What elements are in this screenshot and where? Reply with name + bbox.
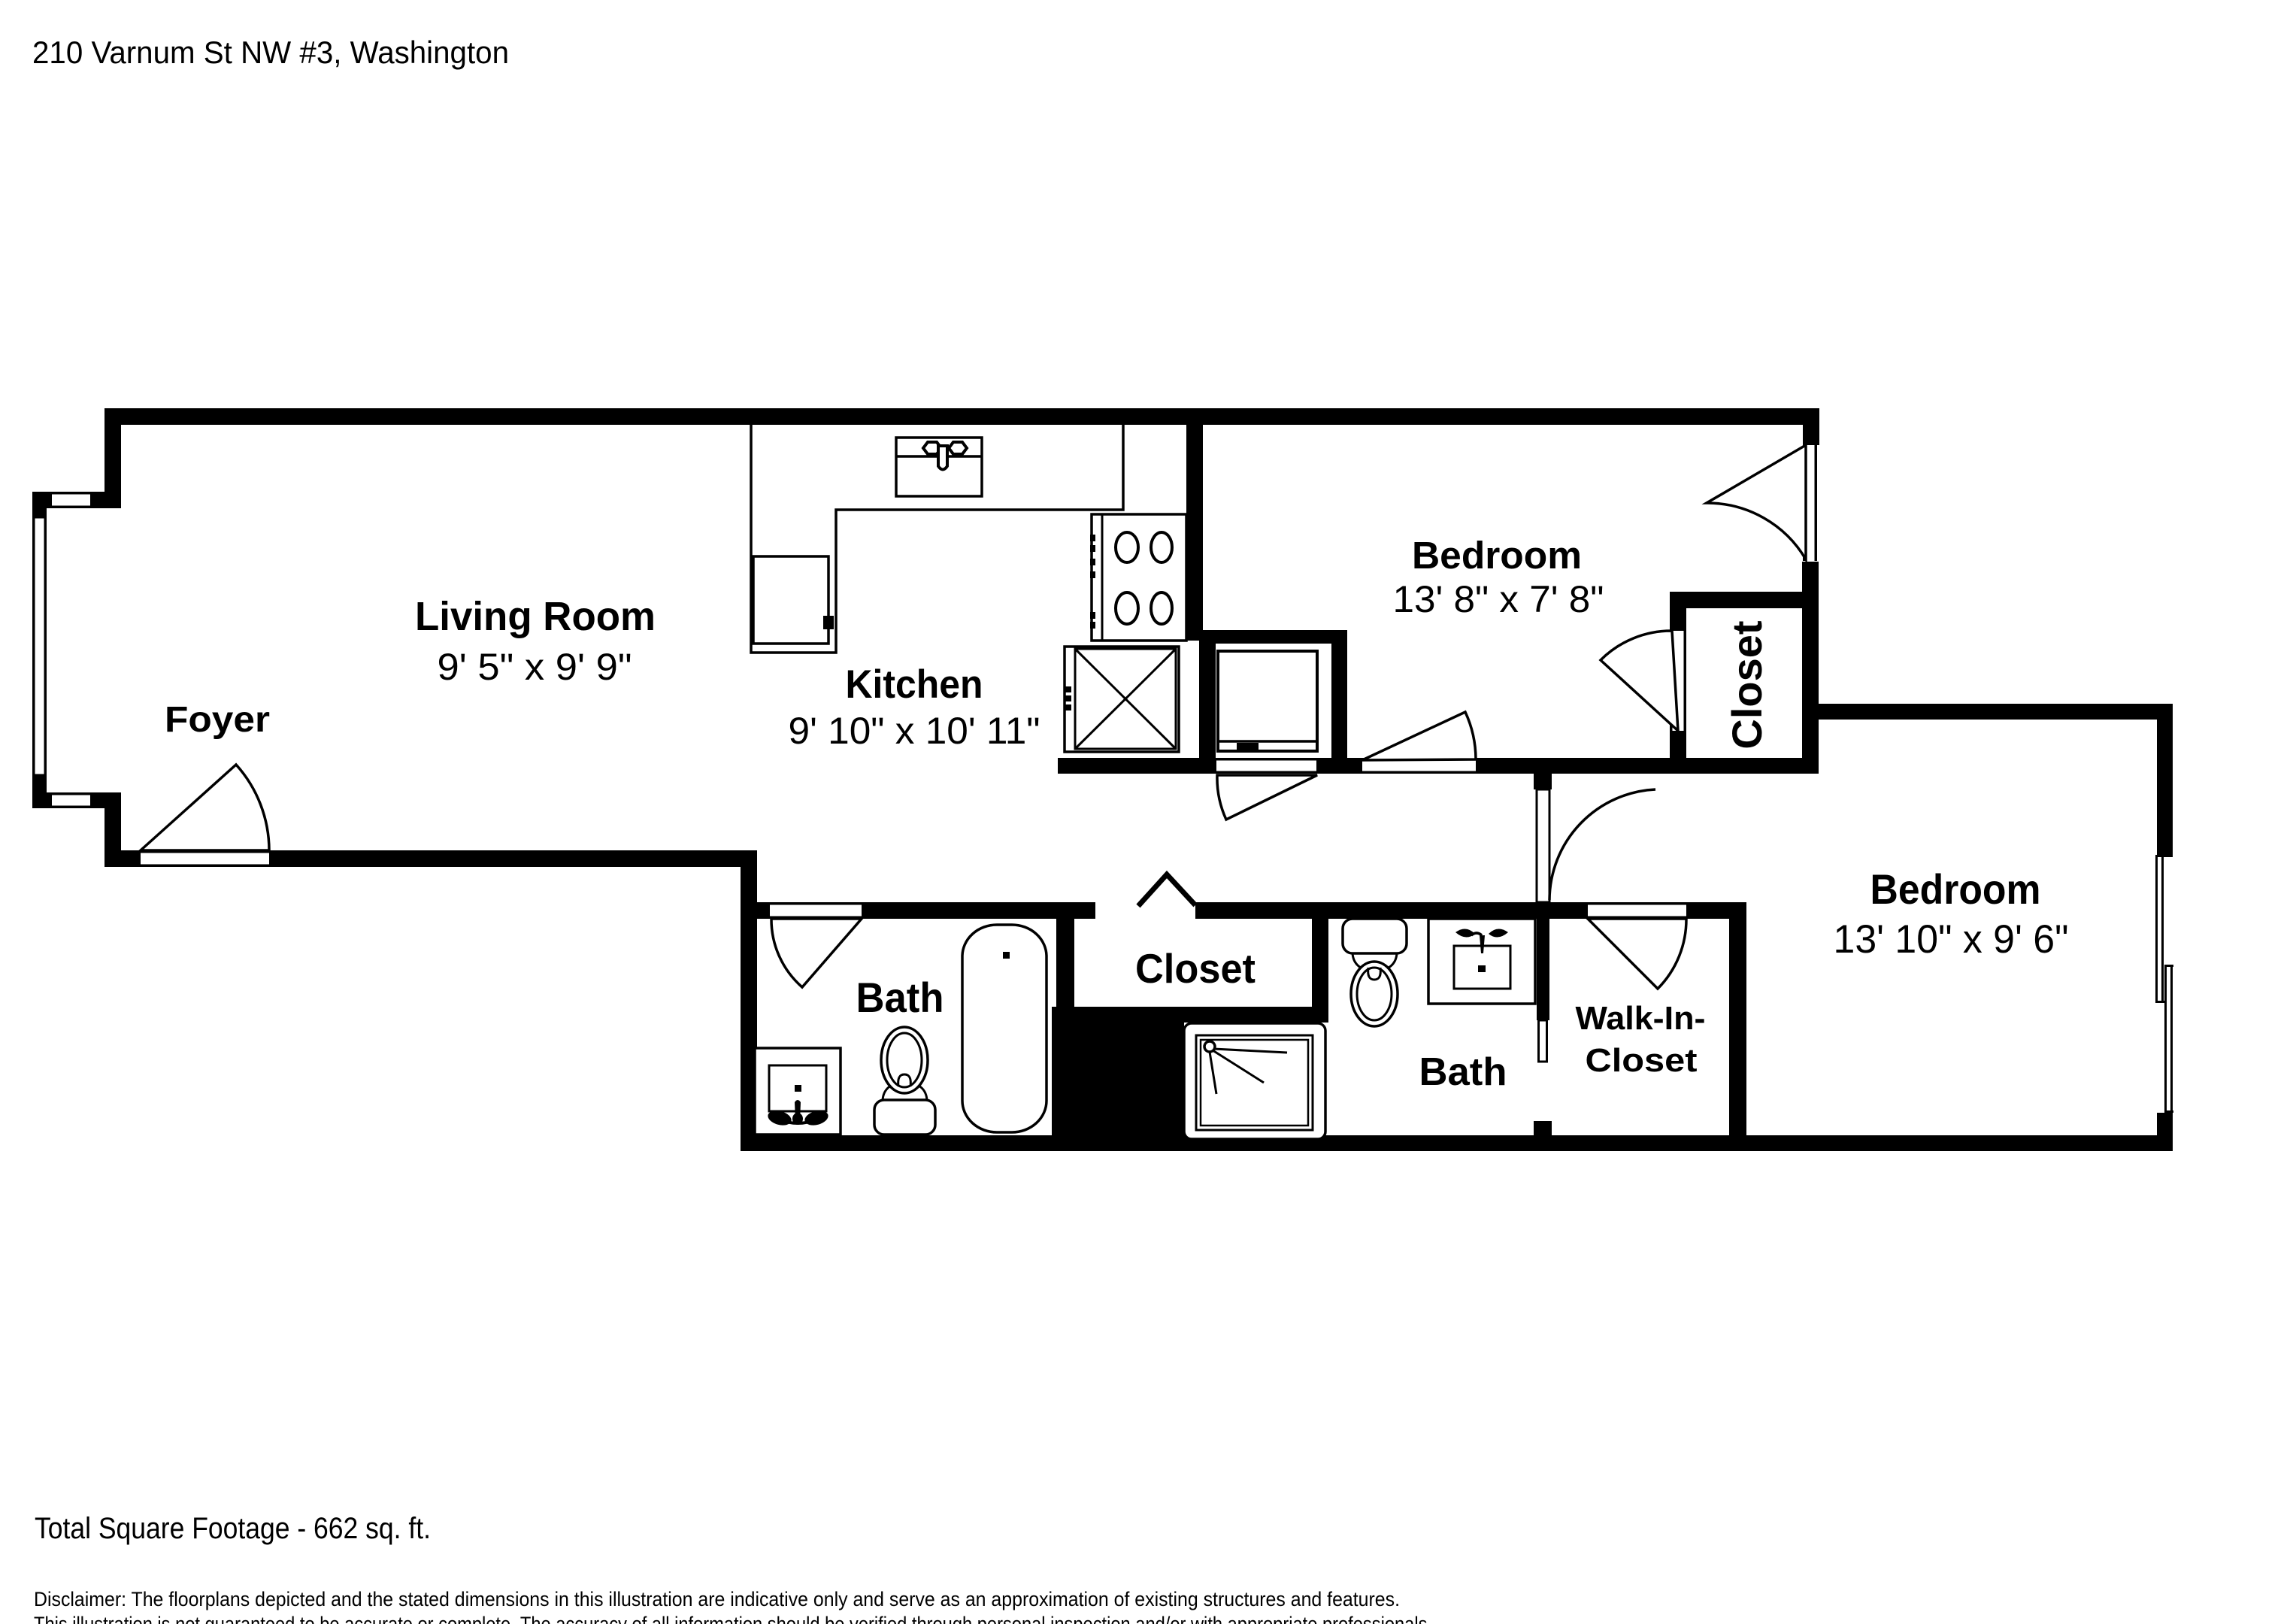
svg-text:13' 8" x 7' 8": 13' 8" x 7' 8" bbox=[1393, 578, 1604, 620]
svg-text:Closet: Closet bbox=[1586, 1042, 1698, 1079]
svg-text:Living Room: Living Room bbox=[415, 594, 656, 639]
svg-text:Disclaimer: The floorplans dep: Disclaimer: The floorplans depicted and … bbox=[34, 1588, 1400, 1610]
svg-text:This illustration is not guara: This illustration is not guaranteed to b… bbox=[34, 1613, 1432, 1624]
svg-text:Total Square Footage - 662 sq.: Total Square Footage - 662 sq. ft. bbox=[35, 1512, 431, 1545]
svg-text:Walk-In-: Walk-In- bbox=[1576, 1000, 1706, 1037]
svg-text:Bath: Bath bbox=[1419, 1050, 1507, 1094]
svg-text:9' 5" x 9' 9": 9' 5" x 9' 9" bbox=[438, 646, 632, 688]
svg-text:9' 10" x 10' 11": 9' 10" x 10' 11" bbox=[789, 710, 1040, 752]
svg-text:210 Varnum St NW #3, Washingto: 210 Varnum St NW #3, Washington bbox=[32, 35, 509, 70]
svg-text:Bath: Bath bbox=[856, 974, 944, 1021]
svg-text:Closet: Closet bbox=[1135, 945, 1256, 992]
svg-text:Foyer: Foyer bbox=[165, 700, 270, 740]
svg-text:Bedroom: Bedroom bbox=[1870, 865, 2041, 913]
svg-text:13' 10" x 9' 6": 13' 10" x 9' 6" bbox=[1834, 917, 2069, 962]
svg-text:Kitchen: Kitchen bbox=[846, 662, 983, 707]
svg-text:Closet: Closet bbox=[1723, 620, 1770, 749]
svg-text:Bedroom: Bedroom bbox=[1412, 534, 1582, 577]
